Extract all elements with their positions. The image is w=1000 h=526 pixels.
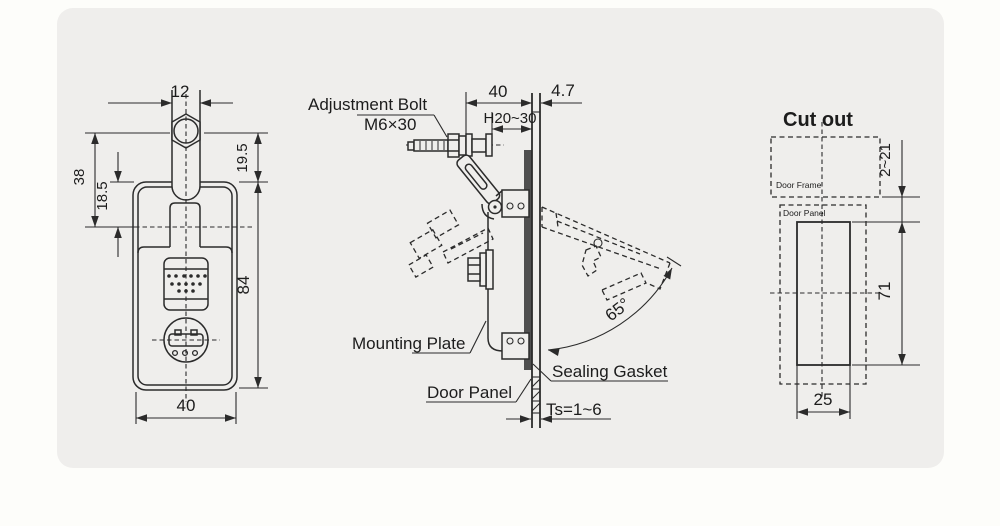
adjustment-bolt-label: Adjustment Bolt <box>308 95 427 114</box>
dim-edge-distance: 2~21 <box>877 143 894 177</box>
mounting-plate-label: Mounting Plate <box>352 334 465 353</box>
panel-thickness-label: Ts=1~6 <box>546 400 602 419</box>
dim-grip-range: H20~30 <box>484 110 537 127</box>
dim-body-height: 84 <box>234 276 253 295</box>
dim-hex-to-body: 19.5 <box>234 143 251 172</box>
door-frame-label: Door Frame <box>776 180 822 190</box>
dim-shaft-width: 12 <box>171 82 190 101</box>
door-panel-label: Door Panel <box>427 383 512 402</box>
cutout-title: Cut out <box>783 109 853 131</box>
hex-nut-side <box>448 134 459 157</box>
dim-body-width: 40 <box>177 396 196 415</box>
sealing-gasket-label: Sealing Gasket <box>552 362 668 381</box>
bolt-spec-label: M6×30 <box>364 115 416 134</box>
cam-nut <box>468 258 480 281</box>
dim-protrusion: 4.7 <box>551 81 575 100</box>
dim-cutout-height: 71 <box>875 282 894 301</box>
dim-depth: 40 <box>489 82 508 101</box>
dim-cutout-width: 25 <box>814 390 833 409</box>
upper-bracket <box>502 190 529 217</box>
dim-hex-to-center: 38 <box>71 169 88 186</box>
lower-bracket <box>502 333 529 359</box>
dim-body-to-center: 18.5 <box>94 181 111 210</box>
drawing-page: 12 19.5 84 38 18.5 40 <box>0 0 1000 526</box>
door-panel-cutout-label: Door Panel <box>783 208 826 218</box>
technical-drawing: 12 19.5 84 38 18.5 40 <box>0 0 1000 526</box>
